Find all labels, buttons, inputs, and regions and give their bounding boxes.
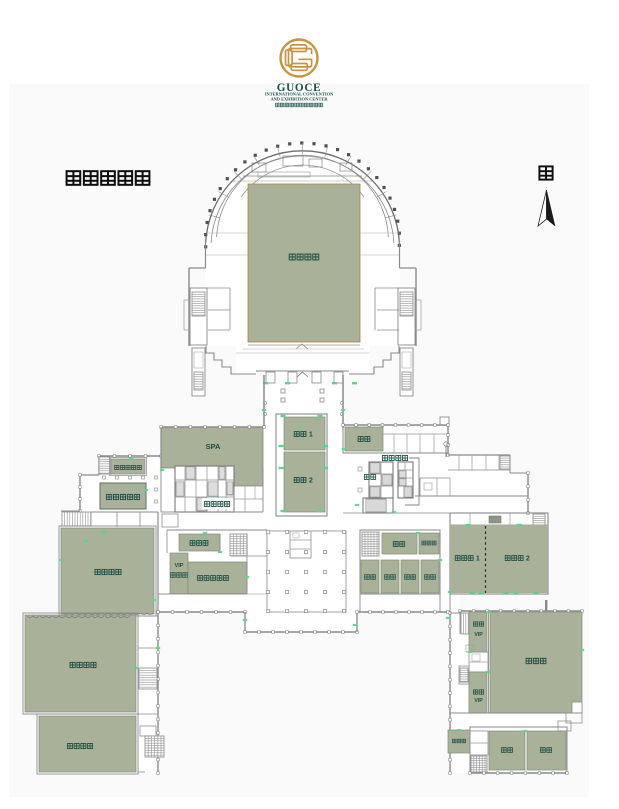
svg-text:2: 2 xyxy=(526,555,530,562)
svg-text:VIP: VIP xyxy=(474,698,483,704)
svg-text:VIP: VIP xyxy=(474,632,483,638)
svg-text:VIP: VIP xyxy=(174,563,183,569)
svg-text:2: 2 xyxy=(309,475,313,484)
svg-text:1: 1 xyxy=(476,555,480,562)
svg-text:1: 1 xyxy=(309,429,313,438)
svg-text:AND EXHIBITION CENTER: AND EXHIBITION CENTER xyxy=(270,96,328,101)
svg-text:SPA: SPA xyxy=(206,442,221,451)
